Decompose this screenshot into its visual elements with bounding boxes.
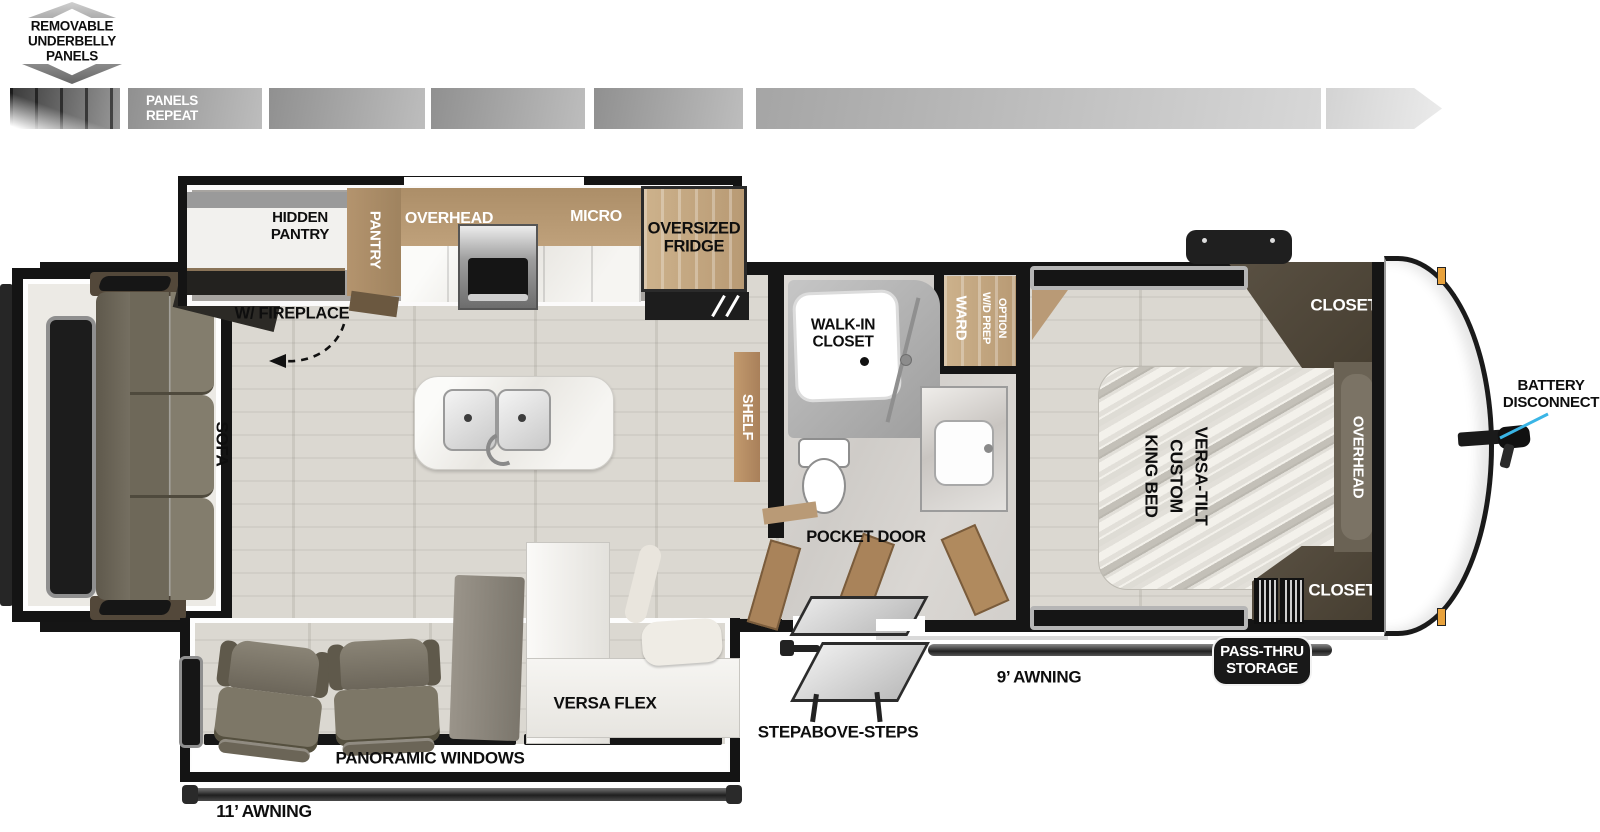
ent-center-arrow-icon [268,320,352,372]
underbelly-panel-3 [269,88,425,129]
fridge-label: OVERSIZED FRIDGE [648,220,741,257]
nightstand-vent-1 [1254,578,1278,624]
pantry-label: PANTRY [366,211,383,269]
roof-vent-cover [1186,230,1292,264]
marker-light-bottom-icon [1437,608,1446,626]
bedroom-front-wall [1372,262,1384,632]
end-table-tray-icon [98,600,173,615]
underbelly-panel-6 [756,88,1321,129]
marker-light-top-icon [1437,267,1446,285]
bedroom-window-top [1030,266,1248,290]
closet-bottom-label: CLOSET [1308,580,1375,599]
slide-side-window [179,656,203,748]
desk-chair-seat [641,617,724,666]
walk-in-closet-drain-icon [860,357,869,366]
vanity-sink [934,420,994,486]
awning-11-label: 11’ AWNING [216,802,312,822]
awning-rail-camp-side [190,788,736,801]
panoramic-windows-label: PANORAMIC WINDOWS [335,748,524,767]
ward-label: WARD [952,296,969,341]
sink-drain-right-icon [518,414,526,422]
king-bed-label: VERSA-TILT CUSTOM KING BED [1139,427,1214,526]
awning-cap-left-icon [182,785,198,804]
bathroom-left-wall [768,275,784,538]
bedroom-window-bottom [1030,606,1248,630]
underbelly-down-arrow-icon [22,64,122,84]
rear-window [46,316,96,598]
end-table-tray-icon [98,276,173,291]
battery-callout-line [1492,408,1554,444]
underbelly-panel-5 [594,88,743,129]
hidden-pantry-label: HIDDEN PANTRY [271,210,329,244]
theater-seat-left [207,638,333,769]
underbelly-panel-4 [431,88,585,129]
vanity-faucet-icon [984,444,993,453]
sofa-backrest [96,292,130,600]
underbelly-up-arrow-icon [28,2,116,18]
bathroom-bedroom-wall [1016,262,1030,620]
theater-seat-right [327,637,445,761]
awning-cap-right-icon [726,785,742,804]
stepabove-label: STEPABOVE-STEPS [758,722,919,741]
range-cooktop [458,224,538,310]
walk-in-closet-label: WALK-IN CLOSET [811,317,875,352]
kitchen-slide-window-cutout [404,177,584,186]
battery-disconnect-label: BATTERY DISCONNECT [1503,378,1599,412]
walk-in-closet-knob-icon [900,354,912,366]
versa-flex-label: VERSA FLEX [553,693,656,712]
awning-9-label: 9’ AWNING [997,667,1082,686]
panels-repeat-label: PANELS REPEAT [146,93,198,123]
sofa-label: SOFA [212,421,231,466]
pass-thru-label: PASS-THRU STORAGE [1220,644,1304,678]
front-nose-cap [1384,256,1494,636]
bedroom-overhead-label: OVERHEAD [1349,416,1366,499]
body-skirt-line [876,636,1388,640]
kitchen-lower-cabinet [187,268,345,295]
micro-label: MICRO [570,208,622,226]
bottom-wall-window-cutout [876,619,924,631]
underbelly-panel-arrow [1326,88,1442,129]
underbelly-label: REMOVABLE UNDERBELLY PANELS [28,18,116,63]
wd-prep-label: W/D PREP [980,292,992,344]
fridge-base [645,292,749,320]
underbelly-panel-1 [10,88,120,129]
nightstand-vent-2 [1280,578,1304,624]
closet-top-label: CLOSET [1310,295,1377,314]
sink-drain-left-icon [464,414,472,422]
rv-floorplan: REMOVABLE UNDERBELLY PANELS PANELS REPEA… [0,0,1600,832]
step-arm-bar [788,645,820,652]
pocket-door-label: POCKET DOOR [806,528,926,546]
versa-flex-divider [449,575,525,741]
wd-prep-option-label: OPTION [996,298,1008,338]
sofa-seats [130,292,214,600]
shelf-label: SHELF [739,394,755,440]
